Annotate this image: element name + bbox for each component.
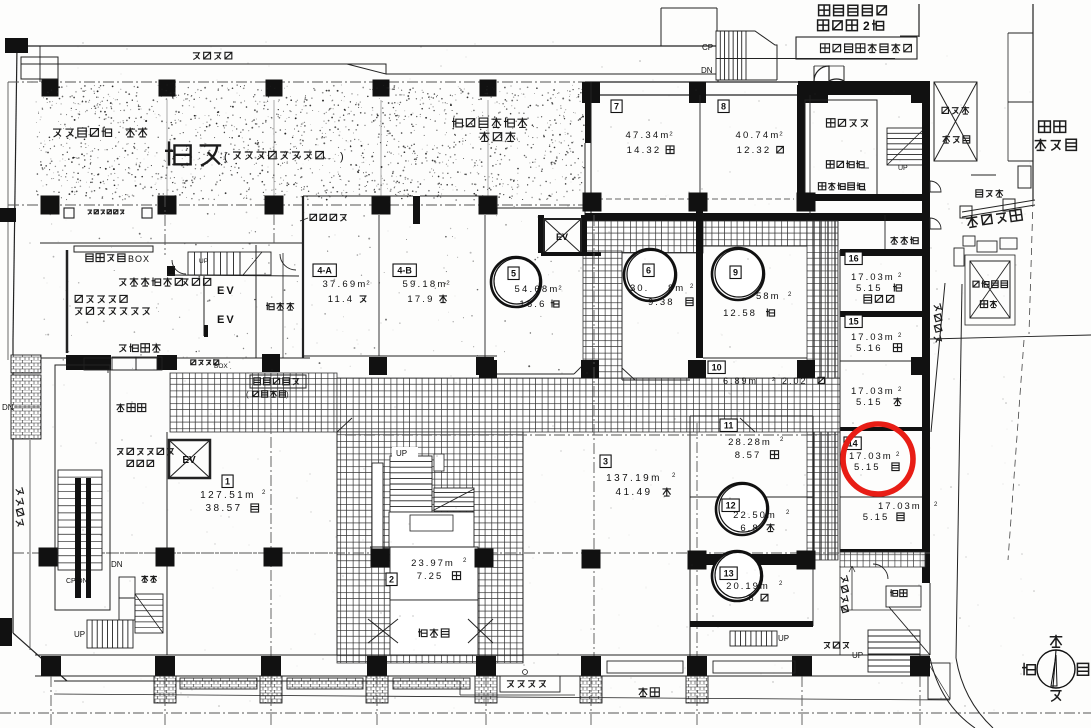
svg-text:54.68m: 54.68m: [515, 284, 560, 295]
svg-text:16.6: 16.6: [519, 299, 546, 310]
svg-text:17.03m: 17.03m: [851, 332, 895, 343]
svg-text:59.18m: 59.18m: [403, 279, 448, 290]
svg-text:7: 7: [614, 102, 619, 112]
svg-text:2: 2: [772, 377, 775, 383]
svg-text:17.03m: 17.03m: [878, 501, 922, 512]
svg-text:2: 2: [669, 132, 672, 138]
svg-text:2: 2: [366, 281, 369, 287]
svg-text:8: 8: [721, 102, 726, 112]
svg-text:13: 13: [724, 569, 734, 579]
svg-text:28.28m: 28.28m: [728, 437, 772, 448]
svg-text:12.58: 12.58: [723, 308, 757, 319]
svg-text:): ): [340, 151, 344, 163]
svg-text:11: 11: [724, 421, 734, 431]
svg-text:2: 2: [863, 19, 870, 33]
svg-text:12.32: 12.32: [737, 145, 772, 156]
svg-text:41.49: 41.49: [615, 487, 652, 498]
svg-text:DN: DN: [111, 560, 123, 569]
svg-text:12: 12: [726, 501, 736, 511]
svg-text:14.32: 14.32: [627, 145, 662, 156]
svg-text:EV: EV: [217, 314, 236, 326]
svg-text:BOX: BOX: [128, 254, 150, 264]
svg-text:6: 6: [748, 593, 755, 604]
svg-text:8m: 8m: [668, 283, 685, 294]
svg-text:4-A: 4-A: [317, 266, 332, 276]
svg-text:5.15: 5.15: [856, 397, 883, 408]
svg-text:10: 10: [712, 363, 722, 373]
svg-text:EV: EV: [182, 455, 196, 466]
svg-text:40.74m: 40.74m: [736, 130, 781, 141]
svg-text:2: 2: [389, 575, 394, 585]
svg-text:127.51m: 127.51m: [200, 490, 256, 501]
svg-text:58m: 58m: [756, 291, 780, 302]
svg-text:EV: EV: [217, 285, 236, 297]
svg-text:30.: 30.: [630, 283, 649, 294]
svg-text:38.57: 38.57: [205, 503, 242, 514]
svg-text:UP: UP: [396, 449, 407, 458]
svg-text:22.50m: 22.50m: [733, 510, 777, 521]
svg-text:5.15: 5.15: [856, 283, 883, 294]
svg-text:5.16: 5.16: [856, 343, 883, 354]
svg-text:7.25: 7.25: [417, 571, 444, 582]
svg-text:20.19m: 20.19m: [726, 581, 770, 592]
svg-text:17.03m: 17.03m: [851, 272, 895, 283]
svg-text:UP: UP: [199, 258, 208, 265]
svg-text:8.57: 8.57: [735, 450, 762, 461]
svg-text:2: 2: [446, 281, 449, 287]
svg-text:17.9: 17.9: [407, 294, 434, 305]
svg-text:5.15: 5.15: [854, 462, 881, 473]
svg-text:DN: DN: [2, 403, 14, 412]
svg-text:): ): [286, 390, 289, 399]
svg-text:15: 15: [849, 317, 859, 327]
svg-text:EV: EV: [556, 232, 568, 242]
svg-text:1: 1: [225, 477, 230, 487]
svg-text:9: 9: [733, 268, 738, 278]
svg-text:2: 2: [558, 286, 561, 292]
svg-text:BOX: BOX: [214, 363, 228, 370]
svg-text:CP DN: CP DN: [66, 578, 88, 585]
svg-text:6: 6: [646, 266, 651, 276]
svg-text:11.4: 11.4: [328, 294, 355, 305]
svg-text:(: (: [246, 390, 249, 399]
svg-text:37.69m: 37.69m: [323, 279, 368, 290]
svg-text:UP: UP: [898, 165, 908, 172]
svg-text:UP: UP: [74, 630, 85, 639]
svg-text:3: 3: [603, 457, 608, 467]
svg-text:5: 5: [511, 269, 516, 279]
svg-text:2.02: 2.02: [782, 376, 808, 386]
svg-text:DN: DN: [701, 66, 713, 75]
svg-text:5.15: 5.15: [863, 512, 890, 523]
svg-text:4-B: 4-B: [397, 266, 412, 276]
svg-text:2: 2: [779, 132, 782, 138]
svg-text:CP: CP: [702, 43, 713, 52]
svg-text:47.34m: 47.34m: [626, 130, 671, 141]
svg-text:23.97m: 23.97m: [411, 558, 455, 569]
svg-text:6.89m: 6.89m: [723, 376, 758, 386]
svg-text:6.8: 6.8: [740, 523, 759, 534]
svg-text:17.03m: 17.03m: [851, 386, 895, 397]
svg-text:16: 16: [849, 254, 859, 264]
svg-text:17.03m: 17.03m: [849, 451, 893, 462]
svg-text:9.38: 9.38: [648, 297, 675, 308]
